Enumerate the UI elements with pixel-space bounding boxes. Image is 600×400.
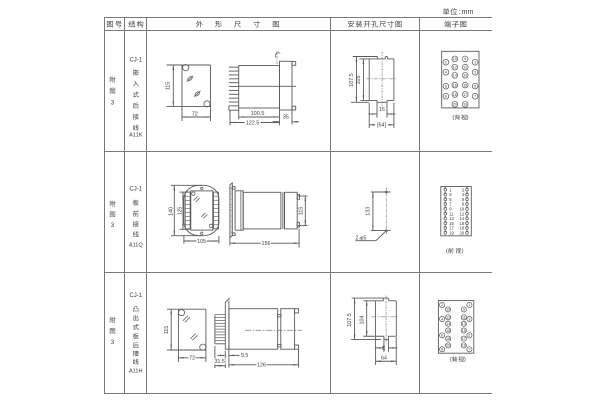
svg-text:): ) xyxy=(462,249,464,255)
svg-text:10: 10 xyxy=(446,308,450,312)
svg-text:16: 16 xyxy=(381,345,386,351)
svg-text:107.5: 107.5 xyxy=(349,73,355,87)
svg-text:126: 126 xyxy=(257,363,266,369)
svg-text:3: 3 xyxy=(111,99,115,106)
svg-text:3: 3 xyxy=(474,70,476,74)
svg-text:6: 6 xyxy=(441,334,443,338)
svg-text:11: 11 xyxy=(462,316,466,320)
svg-text:2: 2 xyxy=(445,60,447,64)
svg-text:9: 9 xyxy=(463,308,465,312)
svg-text:3: 3 xyxy=(111,222,115,229)
svg-text:CJ-1: CJ-1 xyxy=(129,293,142,299)
svg-text:15: 15 xyxy=(463,83,467,87)
svg-text:14: 14 xyxy=(446,322,450,326)
svg-text:12: 12 xyxy=(446,316,450,320)
svg-text:(: ( xyxy=(450,357,452,363)
svg-text:133: 133 xyxy=(366,207,372,216)
svg-text:1: 1 xyxy=(474,60,476,64)
svg-text:31.5: 31.5 xyxy=(214,359,225,365)
svg-text:140: 140 xyxy=(169,207,175,216)
svg-text:19: 19 xyxy=(462,344,466,348)
svg-text:A11Q: A11Q xyxy=(129,242,144,248)
svg-text:115: 115 xyxy=(298,207,304,216)
svg-text:15: 15 xyxy=(462,329,466,333)
svg-text:13: 13 xyxy=(462,322,466,326)
svg-text:156: 156 xyxy=(262,241,271,247)
svg-text:CJ-1: CJ-1 xyxy=(129,187,142,193)
svg-text:5: 5 xyxy=(474,84,476,88)
svg-text:A11K: A11K xyxy=(129,133,143,139)
svg-text:2-φ5: 2-φ5 xyxy=(355,236,366,242)
svg-text:107.5: 107.5 xyxy=(347,313,353,327)
svg-text::: : xyxy=(459,9,461,16)
svg-text:72: 72 xyxy=(192,111,198,117)
svg-text:(: ( xyxy=(446,249,448,255)
svg-text:17: 17 xyxy=(463,93,467,97)
svg-text:[64]: [64] xyxy=(377,123,386,129)
svg-text:104: 104 xyxy=(359,316,365,325)
svg-text:20: 20 xyxy=(453,103,457,107)
svg-text:1: 1 xyxy=(468,303,470,307)
svg-text:12: 12 xyxy=(453,65,457,69)
svg-text:35: 35 xyxy=(283,115,289,121)
svg-text:105: 105 xyxy=(356,76,362,85)
svg-text:6: 6 xyxy=(445,84,447,88)
svg-text:4: 4 xyxy=(441,317,443,321)
svg-text:18: 18 xyxy=(446,337,450,341)
svg-text:CJ-1: CJ-1 xyxy=(129,58,142,64)
svg-text:16: 16 xyxy=(453,83,457,87)
svg-text:115: 115 xyxy=(166,82,172,91)
svg-text:3: 3 xyxy=(468,317,470,321)
svg-text:A11H: A11H xyxy=(129,369,143,375)
svg-text:64: 64 xyxy=(381,355,387,361)
svg-text:9.5: 9.5 xyxy=(241,353,249,359)
svg-text:20: 20 xyxy=(446,344,450,348)
svg-text:3: 3 xyxy=(111,339,115,346)
svg-text:13: 13 xyxy=(463,74,467,78)
svg-text:100.5: 100.5 xyxy=(251,111,265,117)
svg-text:17: 17 xyxy=(462,337,466,341)
svg-text:19: 19 xyxy=(449,230,454,235)
svg-text:9: 9 xyxy=(464,57,466,61)
svg-text:72: 72 xyxy=(189,356,195,362)
svg-text:16: 16 xyxy=(446,329,450,333)
svg-text:122.5: 122.5 xyxy=(246,120,260,126)
svg-text:14: 14 xyxy=(453,74,457,78)
svg-text:(: ( xyxy=(452,115,454,121)
svg-text:5: 5 xyxy=(468,334,470,338)
svg-text:11: 11 xyxy=(463,65,467,69)
svg-text:8: 8 xyxy=(445,94,447,98)
svg-text:115: 115 xyxy=(164,326,170,335)
svg-text:16: 16 xyxy=(379,107,385,113)
svg-text:105: 105 xyxy=(197,239,206,245)
svg-text:18: 18 xyxy=(453,93,457,97)
svg-text:): ) xyxy=(467,115,469,121)
svg-text:2: 2 xyxy=(441,303,443,307)
svg-text:7: 7 xyxy=(474,94,476,98)
svg-text:8: 8 xyxy=(441,348,443,352)
svg-text:20: 20 xyxy=(460,230,465,235)
svg-text:10: 10 xyxy=(453,57,457,61)
svg-text:19: 19 xyxy=(463,103,467,107)
svg-text:): ) xyxy=(464,357,466,363)
svg-text:7: 7 xyxy=(468,348,470,352)
svg-text:4: 4 xyxy=(445,70,447,74)
svg-text:125: 125 xyxy=(177,207,183,216)
svg-text:mm: mm xyxy=(462,9,474,16)
